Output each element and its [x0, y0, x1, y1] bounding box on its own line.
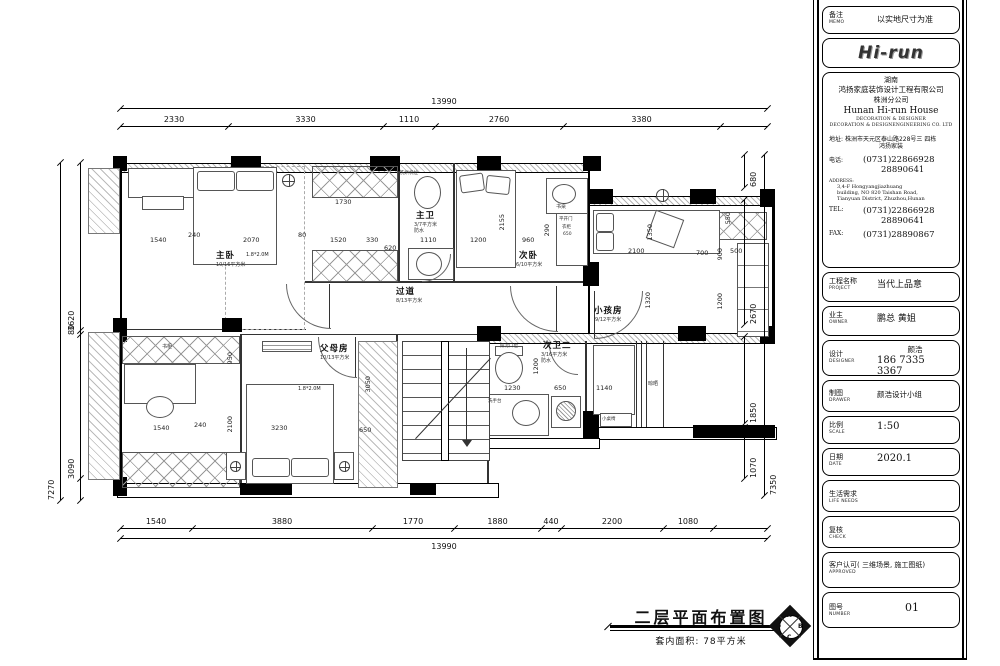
dimension-label: 1230 — [504, 384, 521, 392]
dim-tick — [741, 151, 748, 158]
exterior-bay — [88, 168, 120, 234]
room-label-second: 次卧 — [519, 249, 538, 261]
fax-label: FAX: — [829, 230, 863, 240]
column — [477, 326, 501, 341]
ceiling-light-icon — [656, 189, 669, 202]
dimension-line: 2670 — [744, 200, 761, 324]
column — [690, 189, 716, 204]
room-note-bath2: 防水 — [541, 357, 551, 364]
dim-segment: 1080 — [663, 512, 713, 528]
dimension-label: 80 — [298, 231, 306, 239]
drawer-value: 颜浩设计小组 — [877, 384, 922, 400]
dim-segment: 3090 — [64, 335, 80, 479]
dim-segment: 3330 — [228, 110, 383, 126]
label-desk: 书桌 — [556, 203, 566, 210]
dimension-line: 154038801770188044022001080 — [120, 512, 768, 529]
dim-segment: 1540 — [120, 512, 192, 528]
label-cn: 图号 — [829, 602, 877, 612]
dimension-label: 3230 — [271, 424, 288, 432]
pillow — [596, 232, 614, 251]
dimension-label: 680 — [749, 155, 758, 187]
wall-balcony-east — [663, 341, 664, 427]
dimension-label: 1850 — [749, 337, 758, 423]
balcony-planter — [593, 345, 635, 415]
titleblock-memo: 备注 MEMO 以实地尺寸为准 — [822, 6, 960, 34]
titleblock-date: 日期DATE 2020.1 — [822, 448, 960, 476]
tel-numbers: (0731)22866928 28890641 — [863, 155, 935, 175]
dimension-label: 1730 — [335, 198, 352, 206]
label-cn: 业主 — [829, 310, 877, 320]
label-table: 小桌椅 — [602, 416, 616, 422]
dimension-label: 2070 — [243, 236, 260, 244]
company-tel-en-row: TEL: (0731)22866928 28890641 — [829, 206, 953, 226]
dim-segment: 680 — [745, 155, 761, 187]
window-mullion — [641, 341, 642, 427]
label-en: NUMBER — [829, 612, 877, 617]
drawing-sheet: 主卧 10/16平方米 1.8*2.0M 主卫 3/7平方米 防水 次卧 6/1… — [0, 0, 1000, 666]
dimension-label: 2155 — [498, 214, 506, 231]
dimension-label: 3620 — [67, 163, 76, 331]
room-label-bath2: 次卫二 — [543, 339, 572, 351]
pillow — [252, 458, 290, 477]
stair-rail — [441, 341, 449, 461]
chair — [146, 396, 174, 418]
titleblock-drawer: 制图DRAWER 颜浩设计小组 — [822, 380, 960, 412]
label-dry: 晾晒 — [648, 380, 658, 387]
dimension-label: 2100 — [628, 247, 645, 255]
door-leaf — [355, 337, 356, 377]
bookcase — [122, 336, 240, 364]
project-value: 当代上品意 — [877, 276, 922, 290]
label-wardrobe-1: 平开门 — [559, 216, 573, 222]
downlight-icon — [339, 461, 350, 472]
dim-segment: 1070 — [745, 428, 761, 478]
dimension-label: 1080 — [663, 517, 713, 526]
wall-bath-left-upper — [398, 163, 400, 282]
dimension-line: 3620803090 — [64, 163, 81, 500]
label-cn: 制图 — [829, 388, 877, 398]
dimension-label: 7270 — [47, 163, 56, 500]
dimension-label: 13990 — [120, 97, 768, 106]
column — [678, 326, 706, 341]
window-mullion — [636, 341, 637, 427]
room-label-corridor: 过道 — [396, 285, 415, 297]
dim-tick — [741, 475, 748, 482]
dimension-label: 1200 — [716, 293, 724, 310]
label-cn: 比例 — [829, 420, 877, 430]
dim-segment: 3620 — [64, 163, 80, 331]
titleblock-company: 湖南 鸿扬家庭装饰设计工程有限公司 株洲分公司 Hunan Hi-run Hou… — [822, 72, 960, 268]
dimension-label: 13990 — [120, 542, 768, 551]
room-area-corridor: 8/13平方米 — [396, 297, 422, 304]
tel-en-label: TEL: — [829, 206, 863, 226]
dimension-label: 7350 — [769, 155, 778, 495]
dim-tick — [741, 184, 748, 191]
dim-segment: 2330 — [120, 110, 228, 126]
company-name-en: Hunan Hi-run House — [829, 105, 953, 117]
titleblock-scale: 比例SCALE 1:50 — [822, 416, 960, 444]
room-label-kids: 小孩房 — [594, 304, 623, 316]
compass-letter-south: C — [787, 634, 791, 641]
frame-line — [962, 0, 964, 660]
dimension-label: 1320 — [644, 292, 652, 309]
label-en: LIFE NEEDS — [829, 499, 877, 504]
tel-en-numbers: (0731)22866928 28890641 — [863, 206, 935, 226]
dim-segment: 13990 — [120, 92, 768, 108]
pillow — [596, 213, 614, 232]
frame-line — [966, 0, 967, 660]
address-en-3: Tianyuan District, Zhuzhou,Hunan — [829, 196, 953, 202]
toilet-bath2 — [495, 352, 523, 384]
dresser — [128, 168, 194, 198]
frame-line — [813, 658, 967, 660]
dimension-label: 3380 — [563, 115, 720, 124]
dim-segment: 3880 — [192, 512, 372, 528]
dimension-label: 1140 — [596, 384, 613, 392]
dim-segment — [720, 110, 768, 126]
dim-tick — [117, 525, 124, 532]
column — [410, 483, 436, 495]
dimension-label: 3880 — [192, 517, 372, 526]
dimension-label: 2760 — [435, 115, 563, 124]
dimension-label: 650 — [359, 426, 371, 434]
title-underline — [610, 630, 778, 631]
dim-segment — [64, 479, 80, 500]
dim-segment: 440 — [541, 512, 561, 528]
wall-corridor-south — [485, 333, 775, 344]
pillow — [197, 171, 235, 191]
wardrobe-parents — [358, 341, 398, 488]
title-block: 备注 MEMO 以实地尺寸为准 Hi-run 湖南 鸿扬家庭装饰设计工程有限公司… — [822, 6, 960, 628]
dimension-label: 290 — [543, 224, 551, 236]
dim-segment: 13990 — [120, 539, 768, 555]
owner-value: 鹏总 黄姐 — [877, 310, 916, 324]
frame-line — [817, 0, 819, 660]
dimension-label: 2100 — [226, 416, 234, 433]
titleblock-owner: 业主OWNER 鹏总 黄姐 — [822, 306, 960, 336]
address-label: 地址: — [829, 136, 843, 143]
dimension-line: 23303330111027603380 — [120, 110, 768, 127]
company-logo: Hi-run — [858, 43, 924, 63]
toilet-master — [414, 176, 441, 209]
pillow — [291, 458, 329, 477]
label-cn: 客户认可( 三维场景, 施工图纸) — [829, 560, 953, 570]
sink-bath2 — [512, 400, 540, 426]
dimension-label: 1070 — [749, 428, 758, 478]
dim-segment: 2760 — [435, 110, 563, 126]
tel-2: 28890641 — [863, 165, 924, 175]
label-en: SCALE — [829, 430, 877, 435]
dim-segment: 2670 — [745, 200, 761, 324]
titleblock-approved: 客户认可( 三维场景, 施工图纸)APPROVED — [822, 552, 960, 588]
dim-segment: 7350 — [765, 155, 781, 495]
wardrobe — [312, 250, 398, 282]
company-name-cn: 鸿扬家庭装饰设计工程有限公司 — [829, 85, 953, 95]
pillow — [459, 172, 485, 193]
room-label-master: 主卧 — [216, 249, 235, 261]
bed-size-parents: 1.8*2.0M — [298, 386, 321, 392]
wardrobe — [122, 452, 240, 488]
company-branch: 株洲分公司 — [829, 96, 953, 105]
dimension-line: 7270 — [44, 163, 61, 500]
label-en: DATE — [829, 462, 877, 467]
door-leaf — [329, 284, 330, 328]
label-en: OWNER — [829, 320, 877, 325]
dimension-label: 550 — [724, 212, 732, 224]
wardrobe — [312, 166, 398, 198]
column — [583, 156, 601, 171]
pillow — [485, 175, 511, 195]
titleblock-number: 图号NUMBER 01 — [822, 592, 960, 628]
label-cn: 复核 — [829, 525, 877, 535]
label-washer: 洗烘机位 — [400, 170, 418, 176]
dim-segment: 1110 — [383, 110, 435, 126]
dim-tick — [761, 492, 768, 499]
dimension-label: 3050 — [364, 376, 372, 393]
dimension-line: 680 — [744, 155, 761, 187]
designer-value: 颜浩 186 7335 3367 — [877, 344, 953, 377]
room-note-masterbath: 防水 — [414, 227, 424, 234]
wall-parents-north — [242, 334, 485, 335]
dim-segment: 1850 — [745, 337, 761, 423]
label-cn: 备注 — [829, 10, 877, 20]
label-bookcase: 书柜 — [162, 343, 172, 350]
designer-name: 颜浩 — [877, 344, 953, 355]
dimension-label: 240 — [188, 231, 200, 239]
room-label-parents: 父母房 — [320, 342, 349, 354]
washing-machine-drum — [556, 401, 576, 421]
dimension-label: 1200 — [532, 358, 540, 375]
dim-segment: 1770 — [372, 512, 454, 528]
company-fax-row: FAX: (0731)28890867 — [829, 230, 953, 240]
label-cn: 设计 — [829, 349, 877, 359]
label-cn: 日期 — [829, 452, 877, 462]
compass-letter-north: A — [787, 612, 792, 619]
compass-letter-west: D — [776, 623, 781, 630]
exterior-bay — [88, 332, 120, 480]
designer-phone: 186 7335 3367 — [877, 355, 953, 377]
dimension-label: 700 — [696, 249, 708, 257]
company-tel-row: 电话: (0731)22866928 28890641 — [829, 155, 953, 175]
titleblock-logo: Hi-run — [822, 38, 960, 68]
date-value: 2020.1 — [877, 452, 912, 464]
compass-letter-east: B — [798, 623, 803, 630]
dim-segment: 1880 — [454, 512, 541, 528]
label-en: PROJECT — [829, 286, 877, 291]
door-arc-second — [510, 286, 558, 332]
dimension-label: 2670 — [749, 200, 758, 324]
dimension-label: 960 — [522, 236, 534, 244]
pillow — [236, 171, 274, 191]
window-mullion — [646, 341, 647, 427]
titleblock-designer: 设计DESIGNER 颜浩 186 7335 3367 — [822, 340, 960, 376]
dimension-label: 950 — [226, 352, 234, 364]
dimension-label: 2330 — [120, 115, 228, 124]
dimension-label: 1540 — [153, 424, 170, 432]
dimension-line: 13990 — [120, 92, 768, 109]
plan-area-note: 套内面积: 78平方米 — [628, 634, 774, 647]
fax-number: (0731)28890867 — [863, 230, 935, 240]
dimension-label: 1110 — [383, 115, 435, 124]
dim-tick — [117, 123, 124, 130]
dim-segment: 7270 — [44, 163, 60, 500]
dimension-line: 1070 — [744, 428, 761, 478]
dim-tick — [117, 535, 124, 542]
dimension-label: 1200 — [470, 236, 487, 244]
dim-tick — [77, 159, 84, 166]
stair-arrow-line — [466, 348, 467, 440]
dimension-label: 500 — [730, 247, 742, 255]
dim-tick — [57, 159, 64, 166]
dimension-label: 620 — [384, 244, 396, 252]
ceiling-light-icon — [282, 174, 295, 187]
label-en: APPROVED — [829, 570, 953, 575]
frame-line — [813, 0, 814, 660]
titleblock-check: 复核CHECK — [822, 516, 960, 548]
memo-value: 以实地尺寸为准 — [877, 10, 933, 25]
dimension-label: 240 — [194, 421, 206, 429]
dimension-label: 330 — [366, 236, 378, 244]
company-address-cn: 地址: 株洲市天元区泰山路228号三 四栋 — [829, 134, 953, 143]
dimension-label: 1110 — [420, 236, 437, 244]
bed-size-master: 1.8*2.0M — [246, 252, 269, 258]
room-area-kids: 9/12平方米 — [595, 316, 621, 323]
tel-label: 电话: — [829, 155, 863, 175]
label-en: MEMO — [829, 20, 877, 25]
label-wardrobe-2: 衣柜 — [562, 224, 571, 230]
tel-en-2: 28890641 — [863, 216, 924, 226]
dim-segment — [713, 512, 768, 528]
column — [693, 425, 775, 438]
dimension-label: 1520 — [330, 236, 347, 244]
ac-unit — [262, 341, 312, 352]
room-label-masterbath: 主卫 — [416, 209, 435, 221]
downlight-icon — [230, 461, 241, 472]
column — [222, 318, 242, 332]
column — [477, 156, 501, 171]
company-sub-en2: DECORATION & DESIGNENGINEERING CO. LTD — [829, 123, 953, 129]
room-area-master: 10/16平方米 — [216, 261, 245, 268]
tel-en-1: (0731)22866928 — [863, 206, 935, 216]
dimension-line: 1850 — [744, 337, 761, 423]
titleblock-life-needs: 生活需求LIFE NEEDS — [822, 480, 960, 512]
dimension-line: 7350 — [764, 155, 781, 495]
stair-arrow-head — [462, 440, 472, 447]
dim-segment: 3380 — [563, 110, 720, 126]
dimension-label: 2200 — [561, 517, 663, 526]
number-value: 01 — [905, 596, 919, 614]
label-drain: 排污口位 — [500, 343, 518, 349]
field-label: 备注 MEMO — [829, 10, 877, 25]
dimension-label: 650 — [554, 384, 566, 392]
chair — [552, 184, 576, 204]
dimension-label: 1770 — [372, 517, 454, 526]
label-cn: 生活需求 — [829, 489, 877, 499]
dimension-label: 900 — [716, 248, 724, 260]
dimension-label: 1540 — [150, 236, 167, 244]
scale-value: 1:50 — [877, 420, 899, 432]
dimension-label: 1540 — [120, 517, 192, 526]
room-area-second: 6/10平方米 — [516, 261, 542, 268]
label-cn: 工程名称 — [829, 276, 877, 286]
column — [240, 483, 292, 495]
title-underline — [610, 625, 778, 628]
label-wardrobe-3: 650 — [563, 232, 572, 237]
column — [585, 415, 599, 439]
dim-segment: 2200 — [561, 512, 663, 528]
titleblock-project: 工程名称PROJECT 当代上品意 — [822, 272, 960, 302]
label-en: CHECK — [829, 535, 877, 540]
label-en: DESIGNER — [829, 359, 877, 364]
room-area-parents: 10/13平方米 — [320, 354, 349, 361]
wall-bath-bottom — [487, 438, 600, 449]
dim-tick — [761, 151, 768, 158]
dimension-line: 13990 — [120, 538, 768, 555]
tel-1: (0731)22866928 — [863, 155, 935, 165]
dimension-label: 3090 — [67, 335, 76, 479]
dimension-label: 3330 — [228, 115, 383, 124]
label-basin: 洗手台 — [488, 398, 502, 404]
company-address-cn2: 鸿扬家装 — [829, 143, 953, 151]
dresser-stool — [142, 196, 184, 210]
dimension-label: 1350 — [646, 224, 654, 241]
door-leaf — [556, 286, 557, 331]
dimension-label: 1880 — [454, 517, 541, 526]
label-en: DRAWER — [829, 398, 877, 403]
